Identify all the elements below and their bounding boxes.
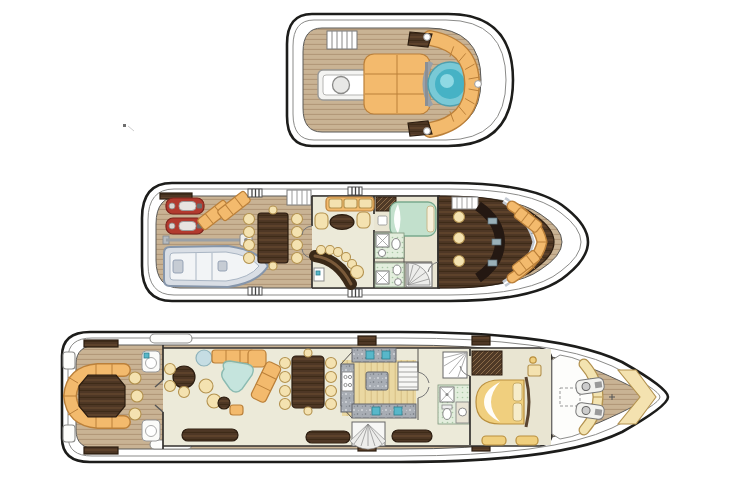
spiral-staircase-icon: [406, 263, 432, 287]
toilet-icon: [392, 239, 400, 250]
galley-counter-icon: [352, 404, 416, 418]
boarding-recess-icon: [150, 334, 192, 343]
toilet-icon: [442, 405, 452, 420]
stern-cleat-strip-icon: [84, 447, 118, 454]
captain-bed-icon: [390, 202, 436, 236]
deck-cleat-icon: [348, 289, 362, 297]
toilet-icon: [393, 265, 401, 275]
deck-cleat-icon: [248, 287, 262, 295]
drink-holder-icon: [424, 34, 431, 41]
main-deck: [62, 332, 668, 462]
sink-icon: [395, 279, 402, 286]
boarding-step-icon: [63, 352, 75, 369]
shower-icon: [440, 387, 454, 402]
side-table-icon: [196, 350, 212, 366]
skylounge-sofa-icon: [326, 197, 374, 211]
aft-dining-table-icon: [79, 375, 125, 417]
sink-icon: [382, 351, 390, 359]
nightstand-icon: [528, 365, 541, 376]
sink-icon: [366, 351, 374, 359]
armchair-icon: [199, 379, 213, 393]
vanity-bench-icon: [482, 436, 506, 445]
nightstand-icon: [378, 216, 387, 225]
companionway-stairs-icon: [327, 31, 357, 49]
wardrobe-icon: [472, 351, 502, 375]
ottoman-icon: [230, 405, 243, 415]
sink-icon: [378, 249, 385, 256]
spiral-staircase-icon: [350, 422, 386, 449]
drink-holder-icon: [424, 128, 431, 135]
drink-holder-icon: [475, 81, 482, 88]
jet-ski-icon: [166, 198, 204, 214]
side-deck-locker-icon: [472, 336, 490, 345]
vanity-bench-icon: [516, 436, 538, 445]
boarding-step-icon: [63, 425, 75, 442]
appliance-icon: [372, 407, 380, 415]
helm-chairs: [454, 212, 465, 267]
coffee-table-icon: [330, 215, 354, 230]
planter-table-icon: [142, 351, 160, 372]
curved-stairs-icon: [443, 352, 467, 378]
armchair-icon: [357, 212, 370, 228]
side-table-icon: [218, 397, 230, 409]
armchair-icon: [315, 213, 328, 229]
sideboard-icon: [306, 431, 350, 443]
stove-icon: [342, 372, 353, 391]
tender-boat-icon: [164, 246, 268, 287]
alfresco-dining-table-icon: [258, 206, 288, 270]
game-table-icon: [173, 366, 195, 388]
sideboard-icon: [392, 430, 432, 442]
lamp-icon: [530, 357, 536, 363]
side-deck-locker-icon: [358, 336, 376, 345]
ensuite-bathroom: [375, 233, 404, 258]
master-cabin: [460, 349, 551, 445]
bridge-deck: [142, 183, 588, 301]
planter-table-icon: [142, 420, 160, 441]
sink-icon: [456, 402, 469, 423]
yacht-deck-plan: [0, 0, 729, 477]
sideboard-icon: [182, 429, 238, 441]
staircase-icon: [398, 362, 418, 390]
day-head-bathroom: [375, 263, 404, 287]
deck-plan-canvas: [0, 0, 729, 477]
stray-mark: [123, 124, 134, 131]
deck-cleat-icon: [248, 189, 262, 197]
master-bed-icon: [476, 377, 529, 427]
sun-deck: [287, 14, 513, 146]
deck-stairs-icon: [287, 190, 311, 205]
galley-island-icon: [366, 372, 388, 390]
formal-dining-table-icon: [292, 356, 324, 408]
stern-cleat-strip-icon: [84, 340, 118, 347]
day-head: [438, 385, 470, 424]
deck-cleat-icon: [348, 187, 362, 195]
appliance-icon: [394, 407, 402, 415]
dining-chairs: [129, 372, 143, 420]
sunpad-icon: [364, 54, 430, 114]
bridge-stairs-icon: [452, 197, 478, 209]
